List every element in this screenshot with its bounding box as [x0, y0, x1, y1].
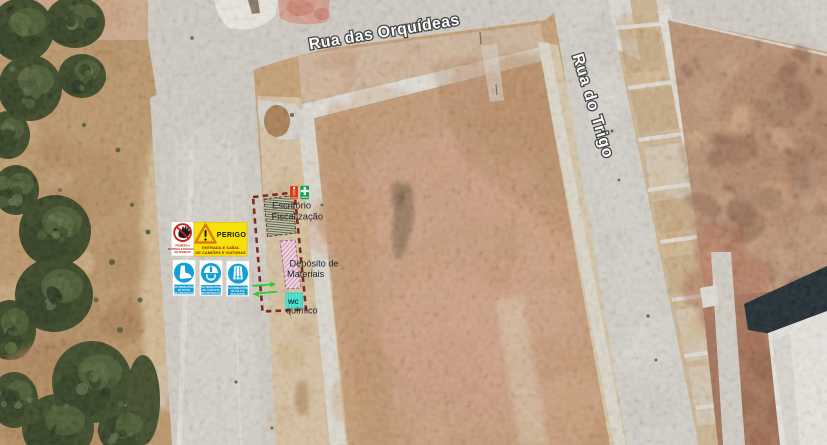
svg-text:DE PROTECÇÃO: DE PROTECÇÃO	[201, 292, 220, 295]
svg-text:wc: wc	[287, 297, 299, 306]
svg-text:PERIGO: PERIGO	[217, 231, 247, 239]
svg-text:Escritório: Escritório	[272, 200, 311, 211]
svg-text:DE PROTECÇÃO: DE PROTECÇÃO	[174, 292, 193, 295]
svg-text:Fiscalização: Fiscalização	[272, 211, 324, 222]
svg-text:DE PESSOAS: DE PESSOAS	[174, 251, 191, 254]
svg-text:DE CAMIÕES E VIATURAS: DE CAMIÕES E VIATURAS	[195, 250, 246, 255]
svg-text:Depósito de: Depósito de	[290, 259, 339, 269]
svg-text:Materiais: Materiais	[287, 269, 325, 279]
svg-text:químico: químico	[286, 306, 318, 316]
svg-text:REFLECTOR: REFLECTOR	[231, 293, 246, 296]
